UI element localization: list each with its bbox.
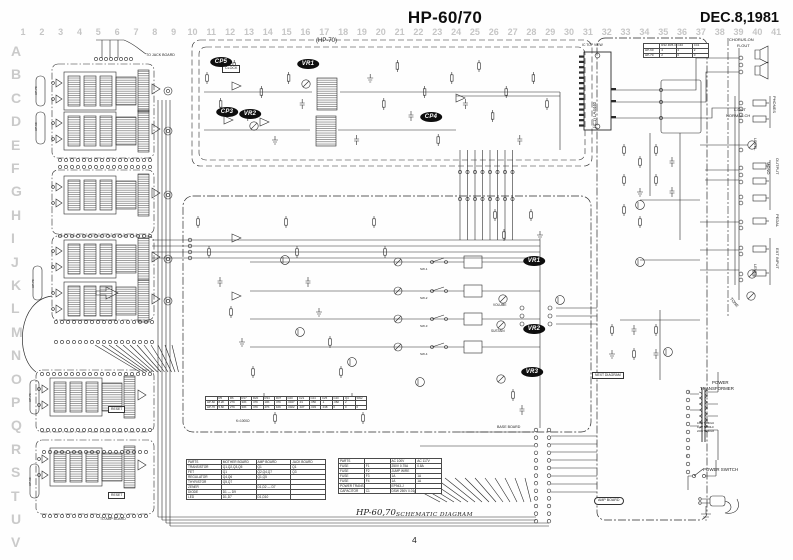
connector-dot	[686, 462, 690, 466]
wire-bundle	[158, 345, 172, 372]
ic-chip	[84, 180, 96, 210]
connector-dot	[60, 340, 63, 343]
connector-block	[138, 70, 149, 112]
table-cell: 0	[692, 53, 708, 58]
wire	[500, 296, 506, 302]
grid-row-label: H	[11, 207, 21, 223]
resistor-icon	[655, 147, 658, 153]
phone-jack-icon	[753, 100, 766, 106]
grid-col-label: 6	[115, 27, 120, 37]
label-hp-70: (HP-70)	[316, 38, 337, 44]
connector-dot	[118, 372, 121, 375]
opamp-icon	[138, 460, 146, 470]
connector-dot	[686, 438, 690, 442]
wire	[303, 81, 309, 87]
xlr-connector	[164, 127, 172, 135]
ic1-pin	[579, 103, 584, 105]
connector-dot	[94, 57, 97, 60]
resistor-icon	[532, 75, 535, 81]
table-cell: 33K	[240, 405, 252, 409]
ribbon-cable	[116, 117, 136, 145]
label-pedal: PEDAL	[775, 214, 779, 227]
label-to-jack-board: TO JACK BOARD	[146, 54, 175, 58]
connector-dot	[148, 158, 151, 161]
table-cell	[291, 495, 326, 500]
ic-chip	[68, 244, 80, 274]
connector-dot	[64, 165, 67, 168]
amp-board-outline	[597, 38, 707, 520]
resistor-icon	[329, 339, 332, 345]
capacitor-icon	[409, 111, 414, 121]
ic1-pin	[579, 114, 584, 116]
connector-dot	[547, 504, 551, 508]
wire	[620, 133, 700, 456]
label-power-switch: POWER SWITCH	[703, 468, 738, 472]
chorus-ic	[316, 116, 336, 146]
connector-dot	[46, 372, 49, 375]
table-cell: HP-70	[206, 405, 218, 409]
label-sw-4: SW-4	[420, 353, 427, 356]
capacitor-icon	[517, 135, 522, 145]
connector-dot	[136, 158, 139, 161]
connector-dot	[100, 372, 103, 375]
table-cell: C1	[364, 489, 390, 494]
capacitor-icon	[463, 99, 468, 109]
grid-row-label: F	[11, 160, 20, 176]
badge-cp5: CP5	[210, 57, 232, 67]
opamp-icon	[152, 124, 160, 134]
table-cell: 0	[355, 405, 367, 409]
connector-dot	[148, 372, 151, 375]
connector-dot	[94, 158, 97, 161]
wire-bundle	[172, 345, 179, 372]
connector-block	[138, 280, 149, 322]
phone-jack-icon	[753, 163, 766, 169]
connector-dot	[70, 372, 73, 375]
connector-dot	[534, 451, 538, 455]
speaker-icons	[755, 46, 768, 79]
relay-box	[464, 285, 482, 297]
connector-dot	[548, 314, 552, 318]
transistor-icon	[281, 256, 290, 265]
connector-dot	[136, 428, 139, 431]
connector-dot	[150, 320, 153, 323]
connector-dot	[52, 428, 55, 431]
grid-col-label: 30	[564, 27, 574, 37]
connector-dot	[130, 165, 133, 168]
connector-dot	[126, 320, 129, 323]
wire	[735, 48, 739, 300]
connector-dot	[42, 514, 45, 517]
ribbon-cable	[116, 245, 136, 273]
connector-dot	[60, 320, 63, 323]
connector-dot	[94, 165, 97, 168]
connector-dot	[547, 481, 551, 485]
connector-dot	[100, 158, 103, 161]
resistor-icon	[530, 212, 533, 218]
grid-row-label: V	[11, 534, 20, 550]
ic-chip	[68, 116, 80, 146]
capacitor-icon	[632, 325, 637, 335]
connector-dot	[739, 173, 743, 177]
connector-dot	[142, 165, 145, 168]
left-loop-wire	[22, 296, 52, 372]
connector-dot	[534, 481, 538, 485]
table-row: HP-705.6K27K33K47K47K10K.0022.027.033.01…	[206, 405, 367, 409]
ribbon-cable	[116, 287, 136, 315]
ic1-pin	[579, 109, 584, 111]
table-cell: 47K	[263, 405, 275, 409]
wire	[748, 293, 754, 299]
connector-dot	[124, 57, 127, 60]
resistor-icon	[451, 75, 454, 81]
connector-dot	[739, 195, 743, 199]
connector-dot	[112, 165, 115, 168]
wire	[498, 322, 504, 328]
ic1-body	[584, 52, 611, 130]
connector-dot	[534, 436, 538, 440]
resistor-icon	[639, 219, 642, 225]
connector-dot	[126, 340, 129, 343]
grid-row-label: G	[11, 183, 22, 199]
phone-jack-icon	[753, 246, 766, 252]
connector-dot	[66, 514, 69, 517]
input-buffer-icon	[42, 455, 48, 479]
capacitor-icon	[354, 135, 359, 145]
badge-cp4: CP4	[420, 112, 442, 122]
ground-icon	[367, 74, 373, 82]
connector-dot	[108, 320, 111, 323]
xlr-connector	[164, 191, 172, 199]
connector-block	[124, 376, 135, 418]
grid-col-label: 15	[282, 27, 292, 37]
grid-col-label: 27	[508, 27, 518, 37]
grid-col-label: 32	[602, 27, 612, 37]
label-ic1-la4440: (IC1) LA4440	[593, 102, 597, 128]
connector-dot	[739, 272, 743, 276]
connector-dot	[124, 158, 127, 161]
connector-dot	[108, 340, 111, 343]
connector-dot	[739, 226, 743, 230]
wire	[96, 40, 146, 58]
grid-row-label: I	[11, 230, 15, 246]
page-title: HP-60/70	[408, 8, 482, 28]
resistor-icon	[623, 177, 626, 183]
connector-dot	[136, 372, 139, 375]
table-cell: DSW 250V 0.01µ	[390, 489, 416, 494]
resistor-icon	[494, 212, 497, 218]
resistor-icon	[274, 415, 277, 421]
label-level: LEVEL	[753, 264, 757, 276]
table-cell: 5.6K	[217, 405, 229, 409]
grid-row-label: B	[11, 66, 21, 82]
connector-dot	[64, 428, 67, 431]
resistor-icon	[396, 63, 399, 69]
connector-dot	[138, 450, 141, 453]
connector-dot	[88, 165, 91, 168]
connector-dot	[106, 158, 109, 161]
connector-dot	[90, 514, 93, 517]
ic1-notch-top	[595, 53, 600, 58]
table-cell: HP-70	[644, 53, 660, 58]
ic1-pin	[579, 82, 584, 84]
capacitor-icon	[654, 349, 659, 359]
connector-dot	[88, 158, 91, 161]
grid-row-label: M	[11, 324, 23, 340]
resistor-icon	[373, 219, 376, 225]
label-volume: VOLUME	[493, 304, 506, 307]
connector-dot	[54, 340, 57, 343]
connector-dot	[94, 428, 97, 431]
ic-chip	[84, 286, 96, 316]
grid-row-label: P	[11, 394, 20, 410]
xlr-connector	[166, 299, 169, 302]
wire	[251, 123, 257, 129]
connector-dot	[100, 165, 103, 168]
grid-col-label: 35	[658, 27, 668, 37]
grid-col-label: 9	[171, 27, 176, 37]
resistor-icon	[478, 63, 481, 69]
page-number: 4	[412, 535, 417, 545]
opamp-icon	[232, 234, 241, 242]
resistor-icon	[491, 113, 494, 119]
xlr-connector	[164, 255, 172, 263]
resistor-icon	[611, 327, 614, 333]
grid-row-label: O	[11, 371, 22, 387]
phone-jack-icon	[753, 116, 766, 122]
table-header-cell: R32·R35·C31	[660, 44, 676, 49]
grid-row-label: Q	[11, 417, 22, 433]
connector-dot	[142, 428, 145, 431]
opamp-icon	[224, 116, 233, 124]
connector-dot	[686, 398, 690, 402]
connector-dot	[547, 466, 551, 470]
connector-dot	[102, 340, 105, 343]
connector-dot	[112, 158, 115, 161]
wire-bundle	[102, 345, 144, 372]
connector-dot	[148, 165, 151, 168]
connector-dot	[82, 372, 85, 375]
ribbon-cable	[116, 77, 136, 105]
opamp-icon	[232, 82, 241, 90]
grid-col-label: 41	[771, 27, 781, 37]
connector-dot	[686, 406, 690, 410]
connector-dot	[547, 459, 551, 463]
ic1-pin	[579, 119, 584, 121]
connector-dot	[118, 428, 121, 431]
resistor-icon	[206, 75, 209, 81]
ground-icon	[239, 338, 245, 346]
connector-dot	[90, 340, 93, 343]
connector-dot	[520, 306, 524, 310]
connector-dot	[739, 201, 743, 205]
capacitor-icon	[670, 187, 675, 197]
grid-row-label: K	[11, 277, 21, 293]
capacitor-icon	[520, 405, 525, 415]
connector-dot	[76, 428, 79, 431]
connector-dot	[84, 340, 87, 343]
connector-dot	[66, 340, 69, 343]
connector-dot	[739, 70, 743, 74]
resistor-icon	[639, 159, 642, 165]
connector-dot	[88, 428, 91, 431]
wire-bundle	[144, 345, 165, 372]
connector-dot	[70, 158, 73, 161]
grid-col-label: 1	[20, 27, 25, 37]
label-r-out: R-OUT	[737, 44, 750, 48]
hp70-board-outline	[192, 40, 592, 166]
resistor-icon	[252, 369, 255, 375]
connector-dot	[130, 158, 133, 161]
connector-dot	[130, 428, 133, 431]
grid-col-label: 13	[244, 27, 254, 37]
opamp-icon	[138, 390, 146, 400]
resistor-icon	[623, 147, 626, 153]
connector-dot	[120, 340, 123, 343]
table-row: LEDD1,D7D1,D10	[187, 495, 326, 500]
connector-dot	[547, 436, 551, 440]
connector-dot	[534, 443, 538, 447]
grid-col-label: 40	[752, 27, 762, 37]
connector-dot	[739, 56, 743, 60]
connector-dot	[106, 372, 109, 375]
connector-dot	[739, 148, 743, 152]
input-buffer-icon	[56, 247, 62, 271]
table-cell: 0	[332, 405, 344, 409]
wire	[204, 92, 560, 150]
resistor-icon	[623, 207, 626, 213]
transistor-icon	[636, 258, 645, 267]
grid-row-label: N	[11, 347, 21, 363]
label-base-board: BASE BOARD	[497, 426, 520, 430]
connector-dot	[126, 514, 129, 517]
ic1-pin	[579, 93, 584, 95]
grid-col-label: 14	[263, 27, 273, 37]
ribbon-cable	[116, 181, 136, 209]
ic-chip	[84, 244, 96, 274]
connector-dot	[124, 165, 127, 168]
ic-chip	[68, 180, 80, 210]
wire	[158, 100, 170, 526]
chorus-ic	[317, 78, 337, 110]
transistor-icon	[296, 328, 305, 337]
wire	[432, 287, 444, 291]
connector-dot	[82, 158, 85, 161]
ic1-pin	[579, 87, 584, 89]
connector-dot	[40, 372, 43, 375]
connector-dot	[100, 428, 103, 431]
resistor-icon	[546, 101, 549, 107]
grid-row-label: U	[11, 511, 21, 527]
input-buffer-icon	[42, 385, 48, 409]
label-phones: PHONES	[772, 96, 776, 113]
connector-dot	[120, 320, 123, 323]
connector-dot	[78, 320, 81, 323]
ic1-pin	[579, 56, 584, 58]
connector-dot	[72, 340, 75, 343]
table-row: HP-70200	[644, 53, 709, 58]
connector-dot	[686, 446, 690, 450]
connector-dot	[48, 514, 51, 517]
connector-dot	[547, 451, 551, 455]
table-cell: 0	[676, 53, 692, 58]
ic-chip	[54, 452, 66, 482]
ic1-pin	[579, 77, 584, 79]
label-normal-ch: NORMAL-CH	[726, 114, 750, 118]
ground-icon	[537, 231, 543, 239]
table-cell: 47K	[252, 405, 264, 409]
opamp-icon	[152, 294, 160, 304]
label-level: LEVEL	[753, 138, 757, 150]
table-cell: .018	[321, 405, 333, 409]
footer-model: HP-60,70	[356, 508, 396, 518]
connector-dot	[520, 322, 524, 326]
ic-chip	[100, 76, 112, 106]
connector-dot	[106, 428, 109, 431]
wire-bundle	[525, 478, 531, 502]
wire-bundle	[495, 478, 510, 502]
connector-dot	[112, 428, 115, 431]
grid-col-label: 10	[187, 27, 197, 37]
ground-icon	[316, 308, 322, 316]
connector-dot	[130, 372, 133, 375]
connector-dot	[58, 428, 61, 431]
xlr-connector	[166, 193, 169, 196]
wire	[420, 432, 534, 446]
opamp-icon	[152, 252, 160, 262]
connector-dot	[144, 340, 147, 343]
phone-jack-icon	[753, 178, 766, 184]
connector-dot	[78, 340, 81, 343]
connector-dot	[54, 514, 57, 517]
label-chorus-on: CHORUS-ON	[729, 38, 754, 42]
table-cell	[416, 489, 442, 494]
ic-chip	[70, 452, 82, 482]
connector-dot	[534, 466, 538, 470]
wire	[432, 258, 444, 262]
grid-col-label: 7	[133, 27, 138, 37]
ic1-pin	[579, 71, 584, 73]
badge-vr3: VR3	[521, 367, 543, 377]
xlr-connector	[164, 87, 172, 95]
connector-dot	[88, 372, 91, 375]
connector-dot	[58, 372, 61, 375]
connector-dot	[686, 414, 690, 418]
resistor-icon	[340, 369, 343, 375]
schematic-page: HP-60/70 DEC.8,1981 12345678910111213141…	[0, 0, 793, 560]
grid-col-label: 34	[639, 27, 649, 37]
label-hp-70: HP-70	[32, 279, 35, 288]
ic1-pin	[579, 66, 584, 68]
connector-dot	[739, 166, 743, 170]
wire	[158, 517, 549, 526]
opamp-icon	[232, 292, 241, 300]
connector-dot	[547, 512, 551, 516]
connector-block	[138, 238, 149, 280]
grid-col-label: 29	[545, 27, 555, 37]
label-amp-board: AMP BOARD	[594, 497, 624, 505]
ground-icon	[637, 188, 643, 196]
table-cell: POWER TRANS	[339, 484, 365, 489]
grid-col-label: 39	[734, 27, 744, 37]
wire	[498, 376, 504, 382]
connector-dot	[114, 340, 117, 343]
wire-bundle	[485, 478, 503, 502]
connector-dot	[90, 320, 93, 323]
label-transformer: TRANSFORMER	[700, 387, 734, 391]
connector-block	[138, 174, 149, 216]
ic-chip	[84, 116, 96, 146]
